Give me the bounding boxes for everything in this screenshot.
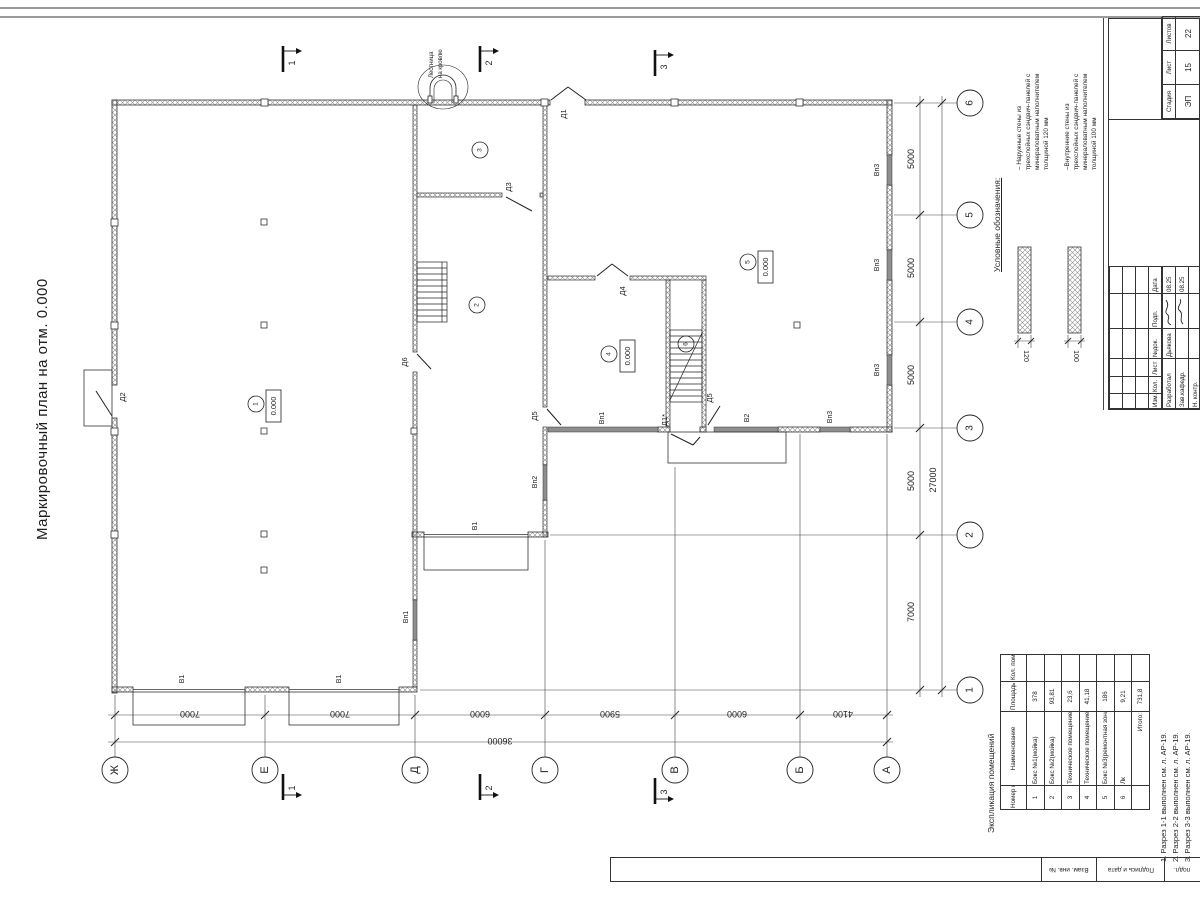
door-label-d4: Д4 [618, 286, 627, 295]
door-label-d1s: Д1* [660, 414, 669, 426]
section-label-1-bot: 1 [287, 785, 297, 790]
room-number-1: 1 [253, 402, 260, 406]
stamp-date-2: 08.25 [1176, 267, 1189, 294]
axis-letter-zh: Ж [109, 765, 121, 775]
axis-letter-b: Б [794, 766, 806, 773]
stamp-date-3 [1189, 267, 1200, 294]
note-1: 1. Разрез 1-1 выполнен см. л. АР-19. [1158, 627, 1170, 862]
dimension-ticks-right [916, 99, 946, 694]
legend-item-interior: –Внутренние стены из трехслойных сэндвич… [1064, 70, 1094, 170]
axis-number-6: 6 [965, 100, 976, 106]
axis-bubbles-bottom [102, 757, 900, 783]
frame-cell-podl-label: подл. [1174, 866, 1190, 873]
frame-cell-empty [611, 858, 1042, 881]
stamp-role-1: Разработал [1163, 359, 1176, 409]
door-leaves [96, 87, 720, 445]
expl-cell-num [1132, 786, 1150, 810]
stamp-header-podp: Подп. [1149, 294, 1162, 329]
dim-bottom-1: 7000 [180, 709, 200, 719]
wall-openings-grey [413, 155, 892, 640]
section-label-3-bot: 3 [659, 789, 669, 794]
expl-cell-area: 731,8 [1132, 682, 1150, 712]
legend-item-exterior: – Наружные стены из трехслойных сэндвич-… [1016, 70, 1046, 170]
expl-header-area: Площадь, м2 [1001, 682, 1027, 712]
interior-walls [413, 105, 706, 687]
dim-right-1: 5000 [906, 149, 916, 169]
section-label-2-top: 2 [484, 60, 494, 65]
gate-label-vp3-d: Вп3 [827, 411, 834, 423]
explication-table: Номер помещ. Наименование Площадь, м2 Ко… [1000, 654, 1150, 810]
stamp-sheet-header: Лист [1163, 51, 1176, 85]
signature-icon [1176, 297, 1186, 327]
stairs-room2 [417, 262, 447, 322]
table-row: 1 Бокс №1(мойка) 378 [1027, 655, 1045, 810]
stairs-stairwell [670, 330, 702, 402]
expl-cell-name: Итого: [1132, 712, 1150, 786]
stamp-stage-header: Стадия [1163, 85, 1176, 119]
axis-number-1: 1 [965, 687, 976, 693]
notes-block: 1. Разрез 1-1 выполнен см. л. АР-19. 2. … [1158, 627, 1193, 862]
axis-letter-e: Е [259, 766, 271, 773]
expl-cell-count [1097, 655, 1115, 682]
room-number-2: 2 [474, 303, 481, 307]
door-label-d3: Д3 [504, 182, 513, 191]
expl-cell-name: Бокс №3(ремонтная зона) [1097, 712, 1115, 786]
expl-header-num: Номер помещ. [1001, 786, 1027, 810]
expl-cell-area: 186 [1097, 682, 1115, 712]
door-label-d5a: Д5 [530, 411, 539, 420]
axis-letter-a: А [881, 766, 893, 774]
expl-cell-name: Бокс №2(мойка) [1044, 712, 1062, 786]
expl-cell-name: Техническое помещение [1079, 712, 1097, 786]
stamp-header-list: Лист [1149, 359, 1162, 377]
expl-cell-name: Техническое помещение [1062, 712, 1080, 786]
frame-cell-vzam-label: Взам. инв. № [1049, 866, 1089, 873]
gate-label-v1-a: В1 [179, 675, 186, 684]
expl-header-name: Наименование [1001, 712, 1027, 786]
dim-bottom-2: 7000 [330, 709, 350, 719]
axis-number-3: 3 [965, 425, 976, 431]
expl-cell-num: 2 [1044, 786, 1062, 810]
axis-number-2: 2 [965, 532, 976, 538]
expl-cell-num: 1 [1027, 786, 1045, 810]
gate-label-vp2: Вп2 [532, 476, 539, 488]
dimension-lines-bottom [108, 434, 893, 757]
expl-cell-name: Лк [1114, 712, 1132, 786]
exterior-walls [112, 100, 892, 693]
dim-right-total: 27000 [928, 467, 938, 492]
stamp-header-kol: Кол. [1149, 377, 1162, 394]
expl-cell-area: 378 [1027, 682, 1045, 712]
section-label-1-top: 1 [287, 60, 297, 65]
table-row: 2 Бокс №2(мойка) 93,81 [1044, 655, 1062, 810]
door-label-d2: Д2 [118, 392, 127, 401]
axis-bubbles-right [957, 90, 983, 703]
roof-ladder-label-1: Лестница [429, 51, 435, 78]
gate-label-v1-c: В1 [472, 522, 479, 531]
stamp-header-izm: Изм. [1149, 394, 1162, 409]
expl-cell-count [1027, 655, 1045, 682]
elevation-value-1: 0.000 [269, 397, 278, 416]
table-row: 5 Бокс №3(ремонтная зона) 186 [1097, 655, 1115, 810]
frame-cell-podl: подл. [1165, 858, 1200, 881]
frame-attribute-strip: Взам. инв. № Подпись и дата подл. [610, 857, 1200, 882]
expl-cell-count [1044, 655, 1062, 682]
room-number-3: 3 [477, 148, 484, 152]
expl-cell-name: Бокс №1(мойка) [1027, 712, 1045, 786]
stamp-sheets-value: 22 [1176, 17, 1200, 51]
room-number-5: 5 [745, 260, 752, 264]
stamp-header-doc: №док. [1149, 329, 1162, 359]
drawing-sheet: { "main_title": "Маркировочный план на о… [0, 0, 1200, 900]
section-label-2-bot: 2 [484, 785, 494, 790]
note-2: 2. Разрез 2-2 выполнен см. л. АР-19. [1170, 627, 1182, 862]
dim-bottom-5: 6000 [727, 709, 747, 719]
aprons-and-porches [84, 370, 786, 725]
axis-letter-d: Д [409, 766, 421, 774]
section-label-3-top: 3 [659, 64, 669, 69]
elevation-value-3: 0.000 [761, 258, 770, 277]
expl-header-count: Кол. пом. [1001, 655, 1027, 682]
legend-dim-120: 120 [1022, 350, 1029, 362]
title-block: Изм. Кол. Лист №док. Подп. Дата Разработ… [1108, 18, 1200, 410]
stamp-sheet-value: 15 [1176, 51, 1200, 85]
gate-label-vp3-a: Вп3 [874, 164, 881, 176]
table-row-total: Итого: 731,8 [1132, 655, 1150, 810]
dim-right-3: 5000 [906, 365, 916, 385]
dimension-lines-right [420, 96, 957, 697]
room-number-6: 6 [683, 342, 690, 346]
frame-cell-podpis-label: Подпись и дата [1108, 866, 1154, 873]
door-label-d6: Д6 [400, 357, 409, 366]
stamp-date-1: 08.25 [1163, 267, 1176, 294]
axis-number-4: 4 [965, 319, 976, 325]
table-row: 3 Техническое помещение 23,6 [1062, 655, 1080, 810]
stamp-name-1: Дьякова [1163, 329, 1176, 359]
dim-right-5: 7000 [906, 602, 916, 622]
expl-cell-count [1132, 655, 1150, 682]
dim-bottom-3: 6000 [470, 709, 490, 719]
stamp-role-2: Зав.кафедр. [1176, 359, 1189, 409]
dim-bottom-4: 5900 [600, 709, 620, 719]
stamp-sheets-header: Листов [1163, 17, 1176, 51]
expl-cell-count [1079, 655, 1097, 682]
frame-cell-podpis: Подпись и дата [1097, 858, 1165, 881]
roof-ladder-label-2: на кровлю [438, 49, 444, 78]
legend-dim-100: 100 [1072, 350, 1079, 362]
door-label-d5b: Д5 [705, 393, 714, 402]
door-label-d1: Д1 [559, 109, 568, 118]
expl-cell-num: 5 [1097, 786, 1115, 810]
stamp-docname-area [1109, 119, 1200, 267]
dim-bottom-total: 36000 [487, 736, 512, 746]
gate-label-vp1-b: Вп1 [599, 412, 606, 424]
stamp-header-data: Дата [1149, 267, 1162, 294]
signature-icon [1163, 297, 1173, 327]
gate-label-vp3-b: Вп3 [874, 259, 881, 271]
stamp-name-3 [1189, 329, 1200, 359]
expl-cell-area: 41,18 [1079, 682, 1097, 712]
legend-wall-samples: 120 100 [1014, 247, 1085, 362]
note-3: 3. Разрез 3-3 выполнен см. л. АР-19. [1182, 627, 1194, 862]
expl-cell-area: 23,6 [1062, 682, 1080, 712]
axis-letter-g: Г [539, 767, 551, 773]
expl-cell-area: 9,21 [1114, 682, 1132, 712]
stamp-org-area [1109, 17, 1162, 119]
explication-title: Экспликация помещений [986, 683, 996, 833]
expl-cell-num: 6 [1114, 786, 1132, 810]
axis-number-5: 5 [965, 212, 976, 218]
table-row: 4 Техническое помещение 41,18 [1079, 655, 1097, 810]
expl-cell-num: 3 [1062, 786, 1080, 810]
stamp-role-3: Н. контр. [1189, 359, 1200, 409]
gate-label-v2: В2 [744, 414, 751, 423]
gate-label-v1-b: В1 [336, 675, 343, 684]
axis-letter-v: В [669, 766, 681, 773]
stamp-stage-value: ЭП [1176, 85, 1200, 119]
stamp-signature-2 [1176, 294, 1189, 329]
elevation-value-2: 0.000 [623, 347, 632, 366]
expl-cell-area: 93,81 [1044, 682, 1062, 712]
frame-cell-vzam: Взам. инв. № [1042, 858, 1097, 881]
gate-label-vp1-a: Вп1 [403, 611, 410, 623]
room-number-4: 4 [606, 352, 613, 356]
stamp-signature-1 [1163, 294, 1176, 329]
expl-cell-count [1114, 655, 1132, 682]
dim-bottom-6: 4100 [833, 709, 853, 719]
table-row: 6 Лк 9,21 [1114, 655, 1132, 810]
expl-cell-num: 4 [1079, 786, 1097, 810]
stamp-name-2 [1176, 329, 1189, 359]
dim-right-4: 5000 [906, 471, 916, 491]
legend-title: Условные обозначения: [992, 160, 1002, 272]
dim-right-2: 5000 [906, 258, 916, 278]
explication-table-wrap: Номер помещ. Наименование Площадь, м2 Ко… [1000, 655, 1150, 810]
gate-label-vp3-c: Вп3 [874, 364, 881, 376]
expl-cell-count [1062, 655, 1080, 682]
stamp-signature-3 [1189, 294, 1200, 329]
